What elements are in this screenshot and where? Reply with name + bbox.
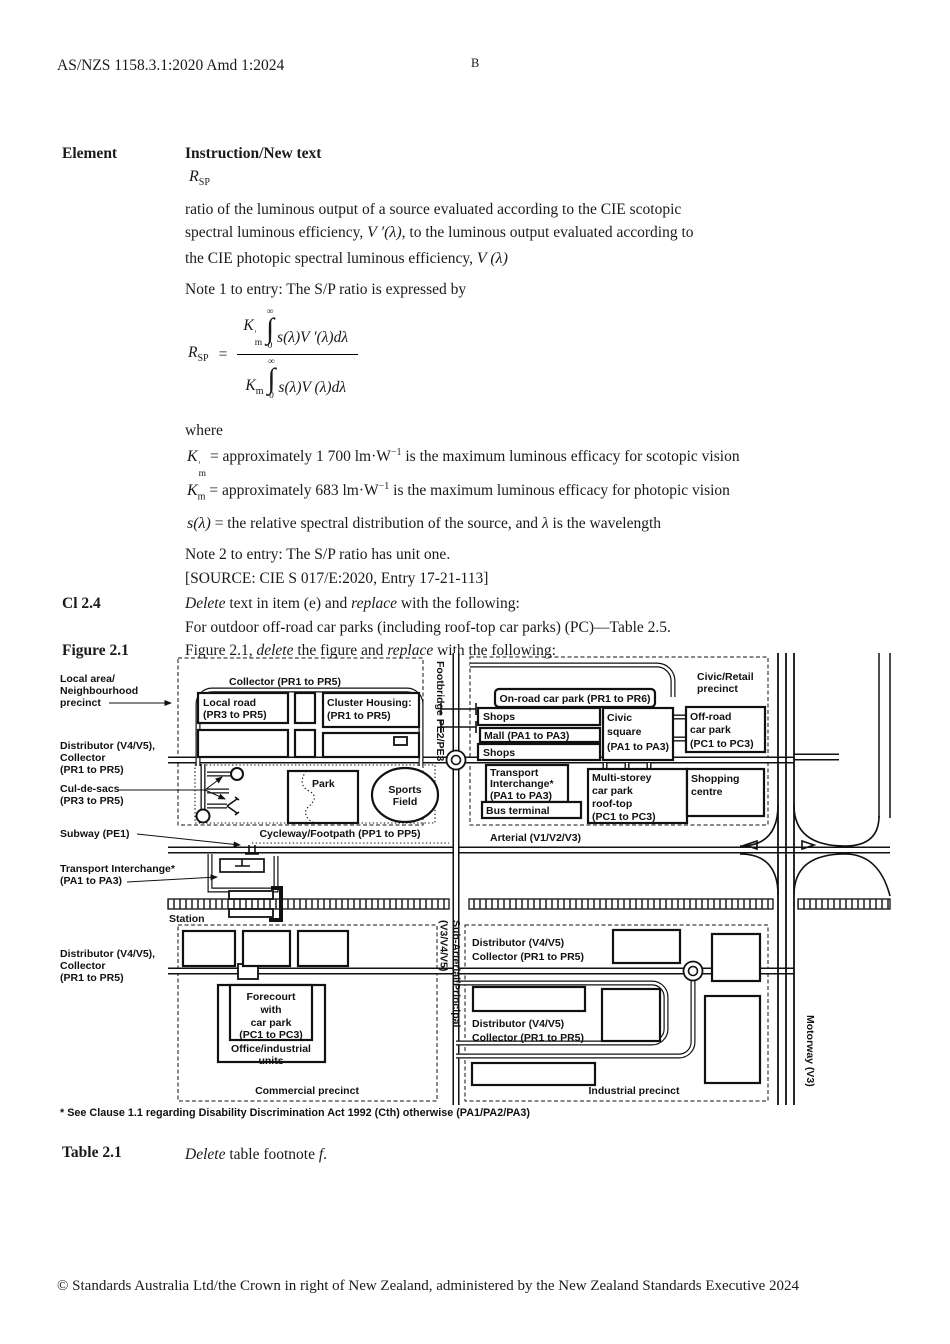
note1: Note 1 to entry: The S/P ratio is expres… (185, 280, 466, 299)
integral-denominator: ∞∫0 (267, 358, 275, 401)
cl24-instruction: Delete text in item (e) and replace with… (185, 594, 520, 613)
label-transport-interchange: Transport Interchange* (60, 863, 176, 875)
table21-instruction: Delete table footnote f. (185, 1145, 327, 1164)
page-marker: B (471, 56, 479, 72)
label-cluster-housing: Cluster Housing: (327, 697, 412, 709)
definition-line3: the CIE photopic spectral luminous effic… (185, 249, 508, 269)
label-park: Park (312, 778, 335, 790)
label-shops-1: Shops (483, 711, 515, 723)
formula-fraction: K'm ∞∫0 s(λ)V ′(λ)dλ Km ∞∫0 s(λ)V (λ)dλ (237, 308, 358, 401)
col-head-element: Element (62, 144, 117, 163)
label-multi-storey: Multi-storey (592, 772, 652, 784)
label-distributor-ind-2: Distributor (V4/V5) (472, 1018, 564, 1030)
svg-text:(PR1 to PR5): (PR1 to PR5) (60, 972, 124, 984)
integral-numerator: ∞∫0 (266, 308, 274, 351)
label-local-area: Local area/ (60, 673, 115, 685)
figure-footnote: * See Clause 1.1 regarding Disability Di… (60, 1107, 530, 1119)
label-onroad-carpark: On-road car park (PR1 to PR6) (499, 693, 650, 705)
col-head-instruction: Instruction/New text (185, 144, 321, 163)
label-offroad-carpark: Off-road (690, 711, 731, 723)
label-industrial-precinct: Industrial precinct (588, 1085, 680, 1097)
label-distributor-ind-1: Distributor (V4/V5) (472, 937, 564, 949)
label-forecourt: Forecourt (246, 991, 296, 1003)
def-km-scotopic: K'm = approximately 1 700 lm·W−1 is the … (187, 447, 740, 478)
svg-text:centre: centre (691, 786, 723, 798)
label-station: Station (169, 913, 205, 925)
label-civic-retail: Civic/Retail (697, 671, 754, 683)
svg-text:car park: car park (690, 724, 731, 736)
label-distributor-a: Distributor (V4/V5), (60, 740, 155, 752)
svg-text:(PA1 to PA3): (PA1 to PA3) (607, 741, 669, 753)
svg-text:(PC1 to PC3): (PC1 to PC3) (592, 811, 656, 823)
cl24-newtext: For outdoor off-road car parks (includin… (185, 618, 671, 637)
label-office-units: Office/industrial (231, 1043, 311, 1055)
svg-text:(PR3 to PR5): (PR3 to PR5) (203, 709, 267, 721)
svg-text:(PC1 to PC3): (PC1 to PC3) (690, 738, 754, 750)
label-motorway: Motorway (V3) (804, 1015, 816, 1087)
label-cycleway: Cycleway/Footpath (PP1 to PP5) (259, 828, 420, 840)
svg-text:(PR1 to PR5): (PR1 to PR5) (60, 764, 124, 776)
svg-text:car park: car park (592, 785, 633, 797)
label-footbridge: Footbridge PE2/PE3 (434, 661, 446, 762)
label-collector: Collector (PR1 to PR5) (229, 676, 341, 688)
def-km-photopic: Km = approximately 683 lm·W−1 is the max… (187, 481, 730, 504)
label-arterial: Arterial (V1/V2/V3) (490, 832, 581, 844)
figure-2-1-map: Local area/ Neighbourhood precinct Distr… (57, 653, 892, 1105)
doc-id: AS/NZS 1158.3.1:2020 Amd 1:2024 (57, 56, 284, 75)
svg-text:units: units (258, 1055, 283, 1067)
where-label: where (185, 421, 223, 440)
svg-text:precinct: precinct (697, 683, 738, 695)
svg-text:(PC1 to PC3): (PC1 to PC3) (239, 1029, 303, 1041)
note2: Note 2 to entry: The S/P ratio has unit … (185, 545, 450, 564)
svg-text:(PR3 to PR5): (PR3 to PR5) (60, 795, 124, 807)
label-sports-field: Sports (388, 784, 421, 796)
label-bus-terminal: Bus terminal (486, 805, 550, 817)
svg-text:Field: Field (393, 796, 418, 808)
label-subway: Subway (PE1) (60, 828, 129, 840)
formula-equals: = (219, 346, 228, 364)
row-label-cl24: Cl 2.4 (62, 594, 101, 613)
def-s-lambda: s(λ) = the relative spectral distributio… (187, 514, 661, 534)
label-shops-2: Shops (483, 747, 515, 759)
railway (168, 899, 890, 909)
label-local-road: Local road (203, 697, 256, 709)
formula-numerator: K'm ∞∫0 s(λ)V ′(λ)dλ (237, 308, 358, 355)
formula-rsp: RSP = K'm ∞∫0 s(λ)V ′(λ)dλ Km ∞∫0 s(λ)V … (188, 308, 358, 401)
document-page: AS/NZS 1158.3.1:2020 Amd 1:2024 B Elemen… (0, 0, 950, 1344)
svg-text:roof-top: roof-top (592, 798, 632, 810)
rsp-symbol: RSP (189, 167, 210, 190)
label-civic-square: Civic (607, 712, 632, 724)
svg-text:Collector: Collector (60, 752, 106, 764)
label-mall: Mall (PA1 to PA3) (484, 730, 569, 742)
svg-text:Collector: Collector (60, 960, 106, 972)
definition-line2: spectral luminous efficiency, V ′(λ), to… (185, 223, 694, 243)
label-cul-de-sacs: Cul-de-sacs (60, 783, 120, 795)
svg-text:(PA1 to PA3): (PA1 to PA3) (60, 875, 122, 887)
svg-text:precinct: precinct (60, 697, 101, 709)
svg-text:Interchange*: Interchange* (490, 778, 555, 790)
definition-line1: ratio of the luminous output of a source… (185, 200, 681, 219)
svg-text:(PR1 to PR5): (PR1 to PR5) (327, 710, 391, 722)
interchange-icon (220, 859, 264, 872)
row-label-table21: Table 2.1 (62, 1143, 122, 1162)
copyright-footer: © Standards Australia Ltd/the Crown in r… (57, 1277, 799, 1296)
label-distributor-b: Distributor (V4/V5), (60, 948, 155, 960)
svg-text:Neighbourhood: Neighbourhood (60, 685, 138, 697)
formula-lhs: RSP (188, 344, 209, 364)
svg-text:car park: car park (251, 1017, 292, 1029)
svg-text:square: square (607, 726, 642, 738)
svg-text:(PA1 to PA3): (PA1 to PA3) (490, 790, 552, 802)
svg-text:Collector (PR1 to PR5): Collector (PR1 to PR5) (472, 1032, 584, 1044)
svg-text:with: with (260, 1004, 282, 1016)
svg-text:Collector (PR1 to PR5): Collector (PR1 to PR5) (472, 951, 584, 963)
label-commercial-precinct: Commercial precinct (255, 1085, 359, 1097)
formula-denominator: Km ∞∫0 s(λ)V (λ)dλ (239, 355, 356, 401)
source-line: [SOURCE: CIE S 017/E:2020, Entry 17-21-1… (185, 569, 488, 588)
label-shopping-centre: Shopping (691, 773, 739, 785)
